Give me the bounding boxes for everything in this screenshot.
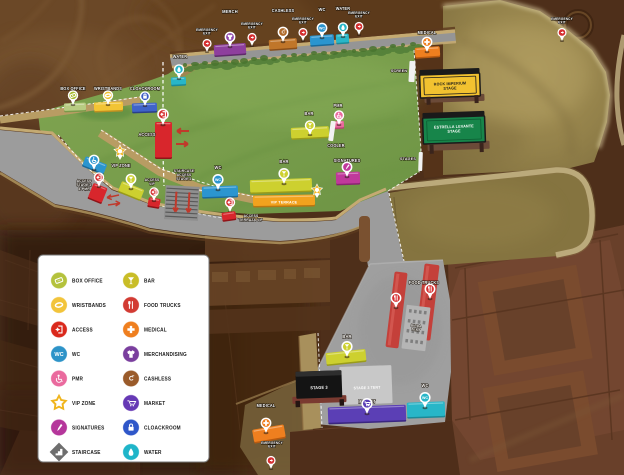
svg-text:PMR: PMR	[72, 376, 83, 382]
svg-text:BAR: BAR	[342, 334, 351, 339]
svg-text:ACCESS: ACCESS	[72, 327, 93, 333]
svg-text:EXIT: EXIT	[248, 25, 256, 29]
svg-text:WC: WC	[422, 396, 428, 400]
svg-text:VIP: VIP	[149, 182, 155, 186]
svg-text:EXIT: EXIT	[355, 14, 363, 18]
svg-text:MEDICAL: MEDICAL	[144, 327, 167, 333]
svg-text:MERCH: MERCH	[222, 9, 238, 14]
svg-text:BAR: BAR	[279, 159, 288, 164]
svg-text:PMR: PMR	[333, 103, 342, 108]
svg-text:VIP ZONE: VIP ZONE	[111, 163, 130, 168]
svg-text:VIP TERRACE: VIP TERRACE	[271, 200, 298, 204]
svg-text:EXIT: EXIT	[299, 20, 307, 24]
svg-text:FOOD TRUCKS: FOOD TRUCKS	[409, 280, 439, 285]
svg-text:C: C	[281, 30, 285, 36]
svg-text:STAGES: STAGES	[400, 157, 416, 161]
svg-text:MEDICAL: MEDICAL	[418, 30, 437, 35]
svg-text:WC: WC	[421, 383, 428, 388]
svg-text:COOLER: COOLER	[327, 143, 345, 148]
svg-text:CLOACKROOM: CLOACKROOM	[144, 425, 181, 431]
svg-text:WC: WC	[319, 27, 325, 31]
svg-text:CASHLESS: CASHLESS	[144, 376, 172, 382]
svg-text:EXIT: EXIT	[203, 31, 211, 35]
svg-text:FOOD TRUCKS: FOOD TRUCKS	[144, 303, 181, 309]
svg-text:VIP ZONE: VIP ZONE	[72, 401, 96, 407]
svg-text:WC: WC	[214, 165, 221, 170]
svg-text:WC: WC	[215, 178, 221, 182]
svg-text:WATER: WATER	[144, 450, 162, 456]
svg-text:TERRAZA VIP: TERRAZA VIP	[239, 218, 263, 222]
svg-text:EXIT: EXIT	[558, 20, 566, 24]
svg-text:CLOACKROOM: CLOACKROOM	[130, 86, 161, 91]
svg-text:WC: WC	[318, 7, 325, 12]
svg-text:STAGE: STAGE	[447, 129, 461, 134]
svg-text:BAR: BAR	[305, 111, 314, 116]
svg-text:ACCESS: ACCESS	[138, 132, 155, 137]
svg-text:MARKET: MARKET	[144, 401, 166, 407]
svg-text:BOX OFFICE: BOX OFFICE	[72, 278, 103, 284]
svg-text:MERCHANDISING: MERCHANDISING	[144, 352, 187, 358]
svg-text:WATER: WATER	[173, 54, 188, 59]
svg-text:STAGE 2: STAGE 2	[176, 177, 191, 181]
svg-text:STAGE 3: STAGE 3	[310, 385, 328, 391]
svg-text:MEDICAL: MEDICAL	[257, 403, 276, 408]
svg-text:WRISTBANDS: WRISTBANDS	[72, 303, 106, 309]
svg-text:STAIRCASE: STAIRCASE	[72, 450, 101, 456]
svg-text:SCREEN: SCREEN	[391, 69, 407, 73]
svg-text:WC: WC	[54, 352, 63, 358]
svg-text:C: C	[129, 376, 134, 383]
svg-text:& PMR: & PMR	[78, 187, 90, 191]
svg-text:CASHLESS: CASHLESS	[272, 8, 295, 13]
svg-text:EXIT: EXIT	[268, 444, 276, 448]
svg-text:WC: WC	[72, 352, 80, 358]
svg-text:BAR: BAR	[144, 278, 155, 284]
svg-text:SIGNATURES: SIGNATURES	[72, 425, 105, 431]
svg-text:STAGE: STAGE	[443, 86, 457, 91]
